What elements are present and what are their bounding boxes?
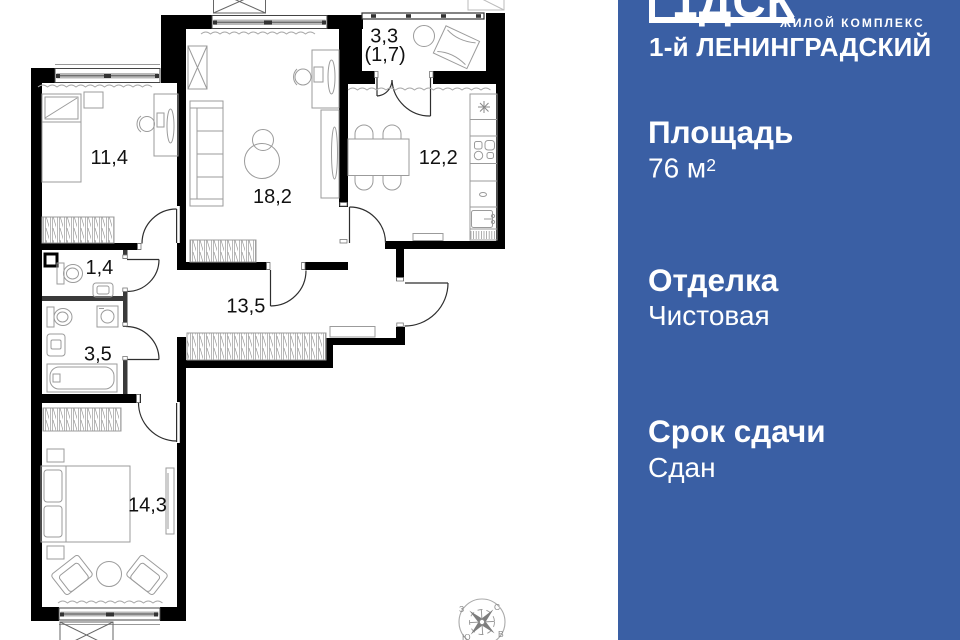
svg-text:18,2: 18,2	[253, 186, 292, 208]
svg-text:1,4: 1,4	[86, 257, 114, 279]
svg-text:14,3: 14,3	[128, 495, 167, 517]
svg-text:3,5: 3,5	[84, 343, 112, 365]
svg-text:З: З	[459, 604, 464, 614]
svg-text:12,2: 12,2	[419, 147, 458, 169]
svg-text:С: С	[494, 602, 500, 612]
svg-text:13,5: 13,5	[226, 296, 265, 318]
svg-text:11,4: 11,4	[91, 147, 128, 169]
svg-text:(1,7): (1,7)	[365, 44, 406, 66]
svg-text:Ю: Ю	[462, 632, 471, 640]
svg-text:В: В	[498, 629, 504, 639]
